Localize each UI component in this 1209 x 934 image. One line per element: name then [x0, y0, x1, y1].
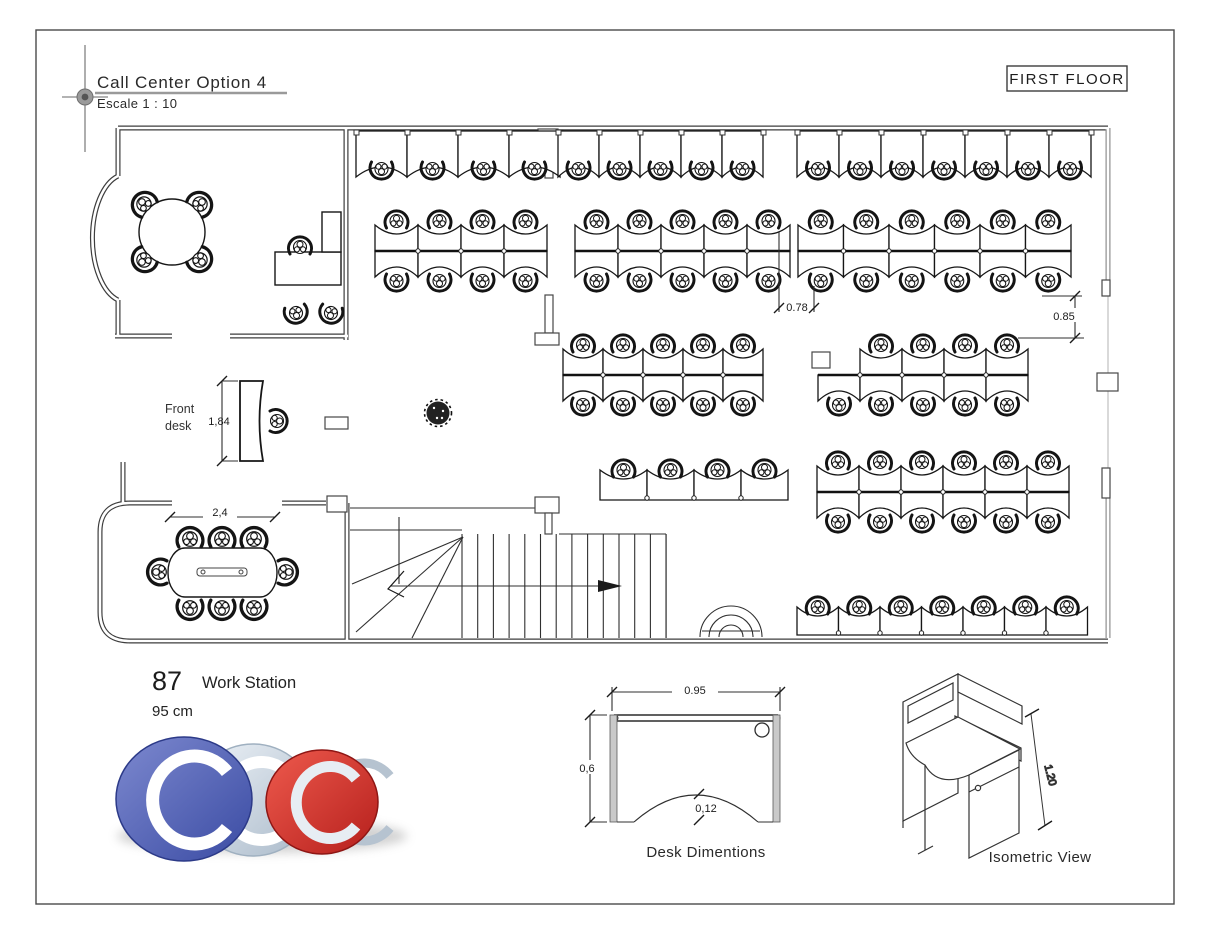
office-chair — [241, 600, 267, 619]
office-chair — [671, 211, 694, 228]
drawing-title: Call Center Option 4 — [97, 73, 267, 92]
office-chair — [946, 211, 969, 228]
desk-diagram-caption: Desk Dimentions — [646, 844, 765, 861]
workstation-wall-row — [354, 130, 563, 179]
office-chair — [809, 274, 832, 291]
office-chair — [1037, 452, 1060, 469]
workstation-cluster — [563, 335, 763, 415]
office-chair — [612, 460, 635, 477]
office-chair — [714, 274, 737, 291]
office-chair — [991, 274, 1014, 291]
office-chair — [278, 559, 297, 585]
workstation-cluster — [375, 211, 547, 291]
office-chair — [1055, 597, 1078, 614]
office-chair — [585, 211, 608, 228]
office-chair — [869, 452, 892, 469]
office-chair — [671, 274, 694, 291]
office-chair — [652, 335, 675, 352]
office-chair — [809, 211, 832, 228]
office-chair — [148, 559, 167, 585]
workstation-wall-row — [795, 130, 1094, 179]
office-chair — [855, 211, 878, 228]
plant — [427, 402, 450, 425]
office-chair — [732, 398, 755, 415]
isometric-view: 1.20 Isometric View — [903, 674, 1091, 866]
office-chair — [385, 274, 408, 291]
office-chair — [828, 398, 851, 415]
office-chair — [692, 335, 715, 352]
office-chair — [1037, 211, 1060, 228]
workstation-cluster — [817, 452, 1069, 532]
office-chair — [855, 274, 878, 291]
office-chair — [757, 211, 780, 228]
workstation-row — [600, 460, 788, 500]
office-chair — [972, 597, 995, 614]
office-chair — [954, 335, 977, 352]
office-chair — [514, 274, 537, 291]
logo-letter-c-blue — [116, 737, 252, 861]
office-chair — [953, 452, 976, 469]
office-chair — [471, 211, 494, 228]
office-chair — [572, 398, 595, 415]
office-chair — [241, 528, 267, 547]
furniture — [127, 130, 1094, 635]
office-chair — [612, 335, 635, 352]
office-chair — [209, 528, 235, 547]
office-chair — [900, 274, 923, 291]
front-desk-label-2: desk — [165, 419, 192, 433]
workstation-cluster-staggered — [818, 335, 1028, 415]
office-chair — [428, 274, 451, 291]
office-chair — [911, 515, 934, 532]
office-chair — [585, 274, 608, 291]
desk-diagram: 0.95 0,6 0,12 Desk Dimentions — [572, 682, 785, 861]
office-chair — [628, 211, 651, 228]
workstation-row — [797, 597, 1088, 635]
office-chair — [870, 398, 893, 415]
office-chair — [995, 515, 1018, 532]
office-chair — [806, 597, 829, 614]
dim-gap: 0.85 — [1053, 311, 1074, 323]
dim-front-desk: 1,84 — [208, 416, 229, 428]
workstation-summary: 87 Work Station 95 cm — [152, 666, 296, 720]
grommet-hole — [755, 723, 769, 737]
office-chair — [652, 398, 675, 415]
office-chair — [692, 398, 715, 415]
office-chair — [1014, 597, 1037, 614]
office-chair — [732, 335, 755, 352]
office-chair — [954, 398, 977, 415]
company-logo — [116, 737, 407, 861]
office-chair — [900, 211, 923, 228]
drawing-sheet: Call Center Option 4 Escale 1 : 10 FIRST… — [0, 0, 1209, 934]
office-chair — [757, 274, 780, 291]
crosshair-center — [82, 94, 89, 101]
iso-dim-height: 1.20 — [1041, 763, 1058, 787]
office-chair — [827, 452, 850, 469]
office-chair — [514, 211, 537, 228]
office-chair — [995, 452, 1018, 469]
office-chair — [209, 600, 235, 619]
office-desk — [275, 252, 341, 285]
office-chair — [1037, 274, 1060, 291]
office-chair — [270, 410, 287, 433]
workstation-size: 95 cm — [152, 703, 193, 720]
office-chair — [848, 597, 871, 614]
office-chair — [953, 515, 976, 532]
office-chair — [912, 335, 935, 352]
office-chair — [827, 515, 850, 532]
office-chair — [572, 335, 595, 352]
office-chair — [889, 597, 912, 614]
office-chair — [946, 274, 969, 291]
office-chair — [714, 211, 737, 228]
office-chair — [385, 211, 408, 228]
office-chair — [177, 528, 203, 547]
office-chair — [428, 211, 451, 228]
office-chair — [753, 460, 776, 477]
office-chair — [628, 274, 651, 291]
drawing-scale: Escale 1 : 10 — [97, 96, 177, 111]
desk-dim-width: 0.95 — [684, 685, 705, 697]
floor-tag-label: FIRST FLOOR — [1009, 71, 1124, 88]
office-chair — [177, 600, 203, 619]
title-block: Call Center Option 4 Escale 1 : 10 — [62, 45, 287, 152]
desk-dim-depth: 0,6 — [579, 763, 594, 775]
workstation-cluster — [575, 211, 790, 291]
desk-dim-notch: 0,12 — [695, 803, 716, 815]
office-chair — [869, 515, 892, 532]
logo-letter-c-red — [266, 750, 378, 854]
workstation-count: 87 — [152, 666, 182, 696]
office-chair — [612, 398, 635, 415]
floor-plan-drawing: Call Center Option 4 Escale 1 : 10 FIRST… — [0, 0, 1209, 934]
office-chair — [911, 452, 934, 469]
office-chair — [996, 398, 1019, 415]
front-desk — [240, 381, 263, 461]
office-chair — [1037, 515, 1060, 532]
office-chair — [870, 335, 893, 352]
office-chair — [996, 335, 1019, 352]
dim-meeting-table: 2,4 — [212, 507, 227, 519]
office-chair — [318, 304, 344, 326]
floor-tag: FIRST FLOOR — [1007, 66, 1127, 91]
front-desk-label-1: Front — [165, 402, 195, 416]
office-chair — [991, 211, 1014, 228]
office-chair — [931, 597, 954, 614]
isometric-caption: Isometric View — [989, 849, 1092, 866]
workstation-cluster — [798, 211, 1071, 291]
office-chair — [912, 398, 935, 415]
office-chair — [706, 460, 729, 477]
office-chair — [283, 304, 309, 326]
office-chair — [659, 460, 682, 477]
office-chair — [471, 274, 494, 291]
cabinet — [322, 212, 341, 252]
workstation-wall-row — [556, 130, 766, 179]
workstation-label: Work Station — [202, 674, 296, 692]
dim-aisle: 0.78 — [786, 302, 807, 314]
